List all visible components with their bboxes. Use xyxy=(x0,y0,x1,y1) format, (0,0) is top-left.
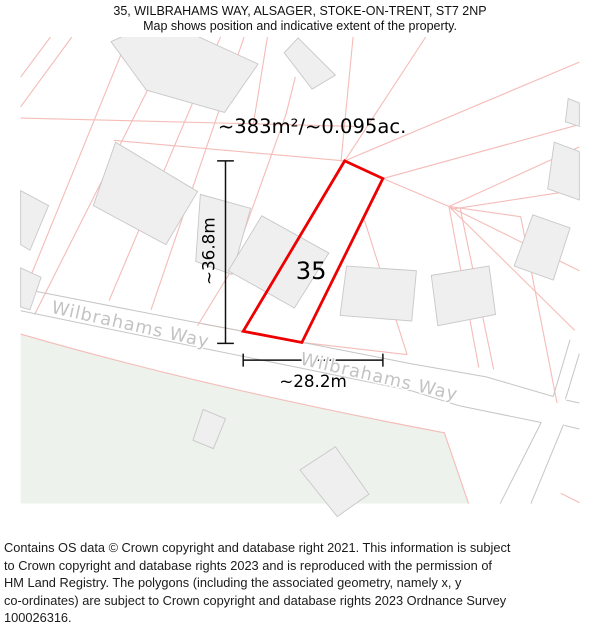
map-header: 35, WILBRAHAMS WAY, ALSAGER, STOKE-ON-TR… xyxy=(0,0,600,37)
parcel-line xyxy=(383,179,449,207)
footer-line: HM Land Registry. The polygons (includin… xyxy=(0,574,600,592)
parcel-line xyxy=(341,37,353,162)
side-road-casing-west-upper xyxy=(553,340,570,397)
area-label: ~383m²/~0.095ac. xyxy=(218,115,406,138)
parcel-line xyxy=(253,37,267,124)
building xyxy=(284,38,335,89)
building xyxy=(431,266,495,326)
side-road-casing-west-lower xyxy=(500,423,541,504)
copyright-footer: Contains OS data © Crown copyright and d… xyxy=(0,537,600,627)
map-canvas[interactable]: ~383m²/~0.095ac. 35 ~36.8m ~28.2m Wilbra… xyxy=(0,37,600,538)
building xyxy=(340,266,416,321)
road-casing-north-east xyxy=(566,400,579,403)
side-road-casing-east-upper xyxy=(565,354,579,400)
depth-dimension-label: ~36.8m xyxy=(198,217,218,285)
building xyxy=(93,142,197,244)
side-road-casing-east-lower xyxy=(531,424,564,503)
building xyxy=(548,142,580,200)
plot-number-label: 35 xyxy=(296,257,327,285)
parcel-line xyxy=(561,493,580,502)
parcel-line xyxy=(345,37,426,161)
parcel-line xyxy=(21,37,72,107)
building xyxy=(565,98,579,126)
road-casing-south-east xyxy=(564,425,579,429)
street-name-label-left: Wilbrahams Way xyxy=(50,298,212,352)
building xyxy=(111,37,258,112)
property-map-svg: ~383m²/~0.095ac. 35 ~36.8m ~28.2m Wilbra… xyxy=(0,37,600,538)
building xyxy=(21,268,41,310)
footer-line: 100026316. xyxy=(0,609,600,627)
property-address-title: 35, WILBRAHAMS WAY, ALSAGER, STOKE-ON-TR… xyxy=(0,0,600,19)
footer-line: to Crown copyright and database rights 2… xyxy=(0,557,600,575)
footer-line: co-ordinates) are subject to Crown copyr… xyxy=(0,592,600,610)
parcel-line xyxy=(345,62,580,161)
parcel-line xyxy=(114,140,344,160)
parcel-line xyxy=(21,37,51,77)
footer-line: Contains OS data © Crown copyright and d… xyxy=(0,539,600,557)
map-description-subtitle: Map shows position and indicative extent… xyxy=(0,19,600,34)
